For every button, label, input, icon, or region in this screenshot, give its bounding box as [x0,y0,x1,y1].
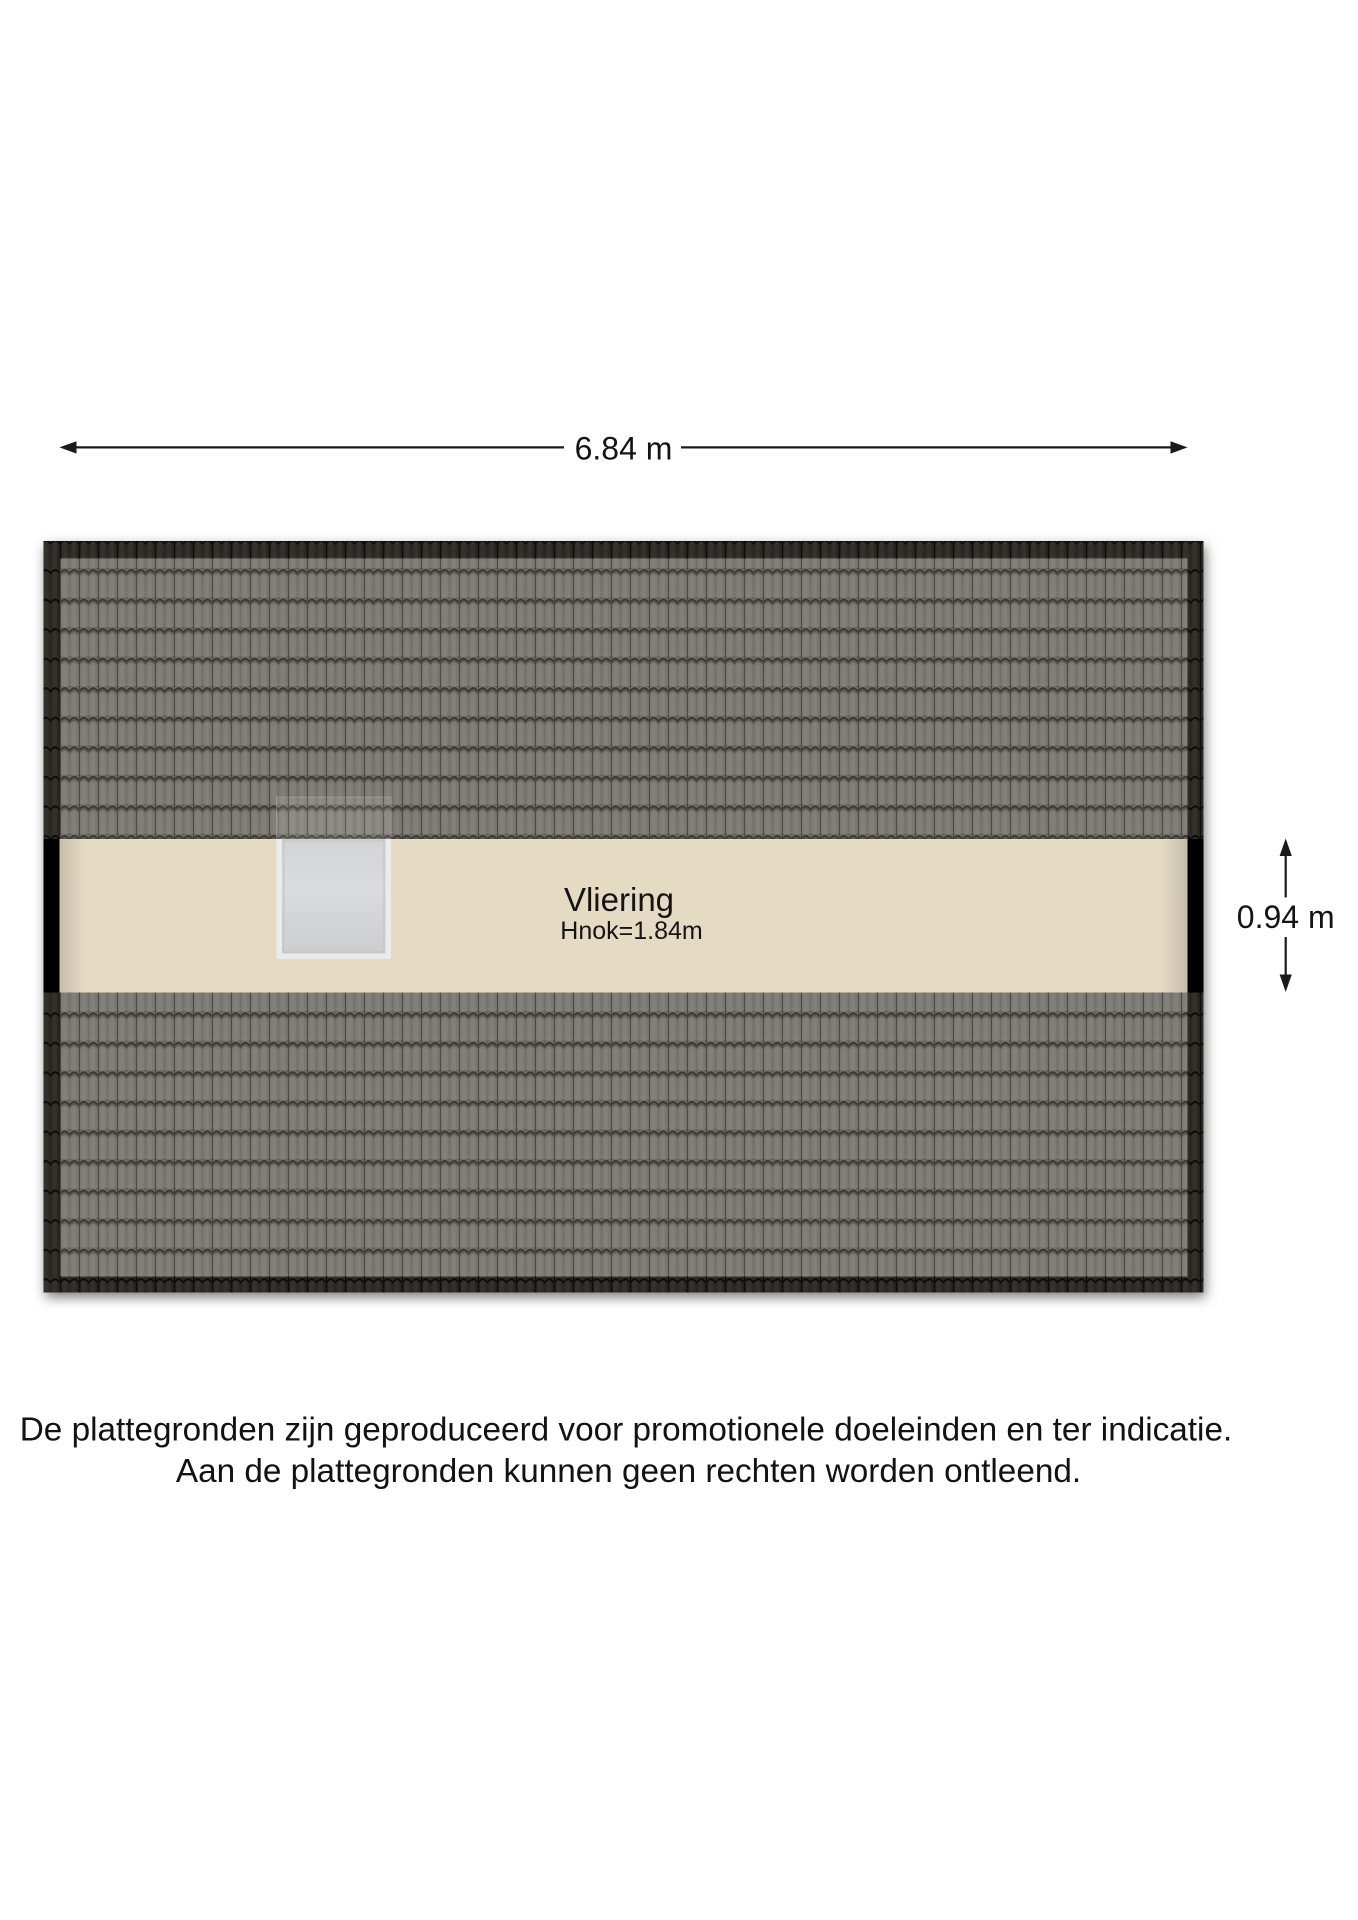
svg-text:Hnok=1.84m: Hnok=1.84m [560,917,702,945]
svg-text:De plattegronden zijn geproduc: De plattegronden zijn geproduceerd voor … [20,1412,1232,1449]
svg-text:6.84 m: 6.84 m [575,431,673,467]
svg-text:0.94 m: 0.94 m [1237,899,1335,935]
svg-text:Aan de plattegronden kunnen ge: Aan de plattegronden kunnen geen rechten… [176,1453,1081,1490]
svg-text:Vliering: Vliering [564,881,674,918]
